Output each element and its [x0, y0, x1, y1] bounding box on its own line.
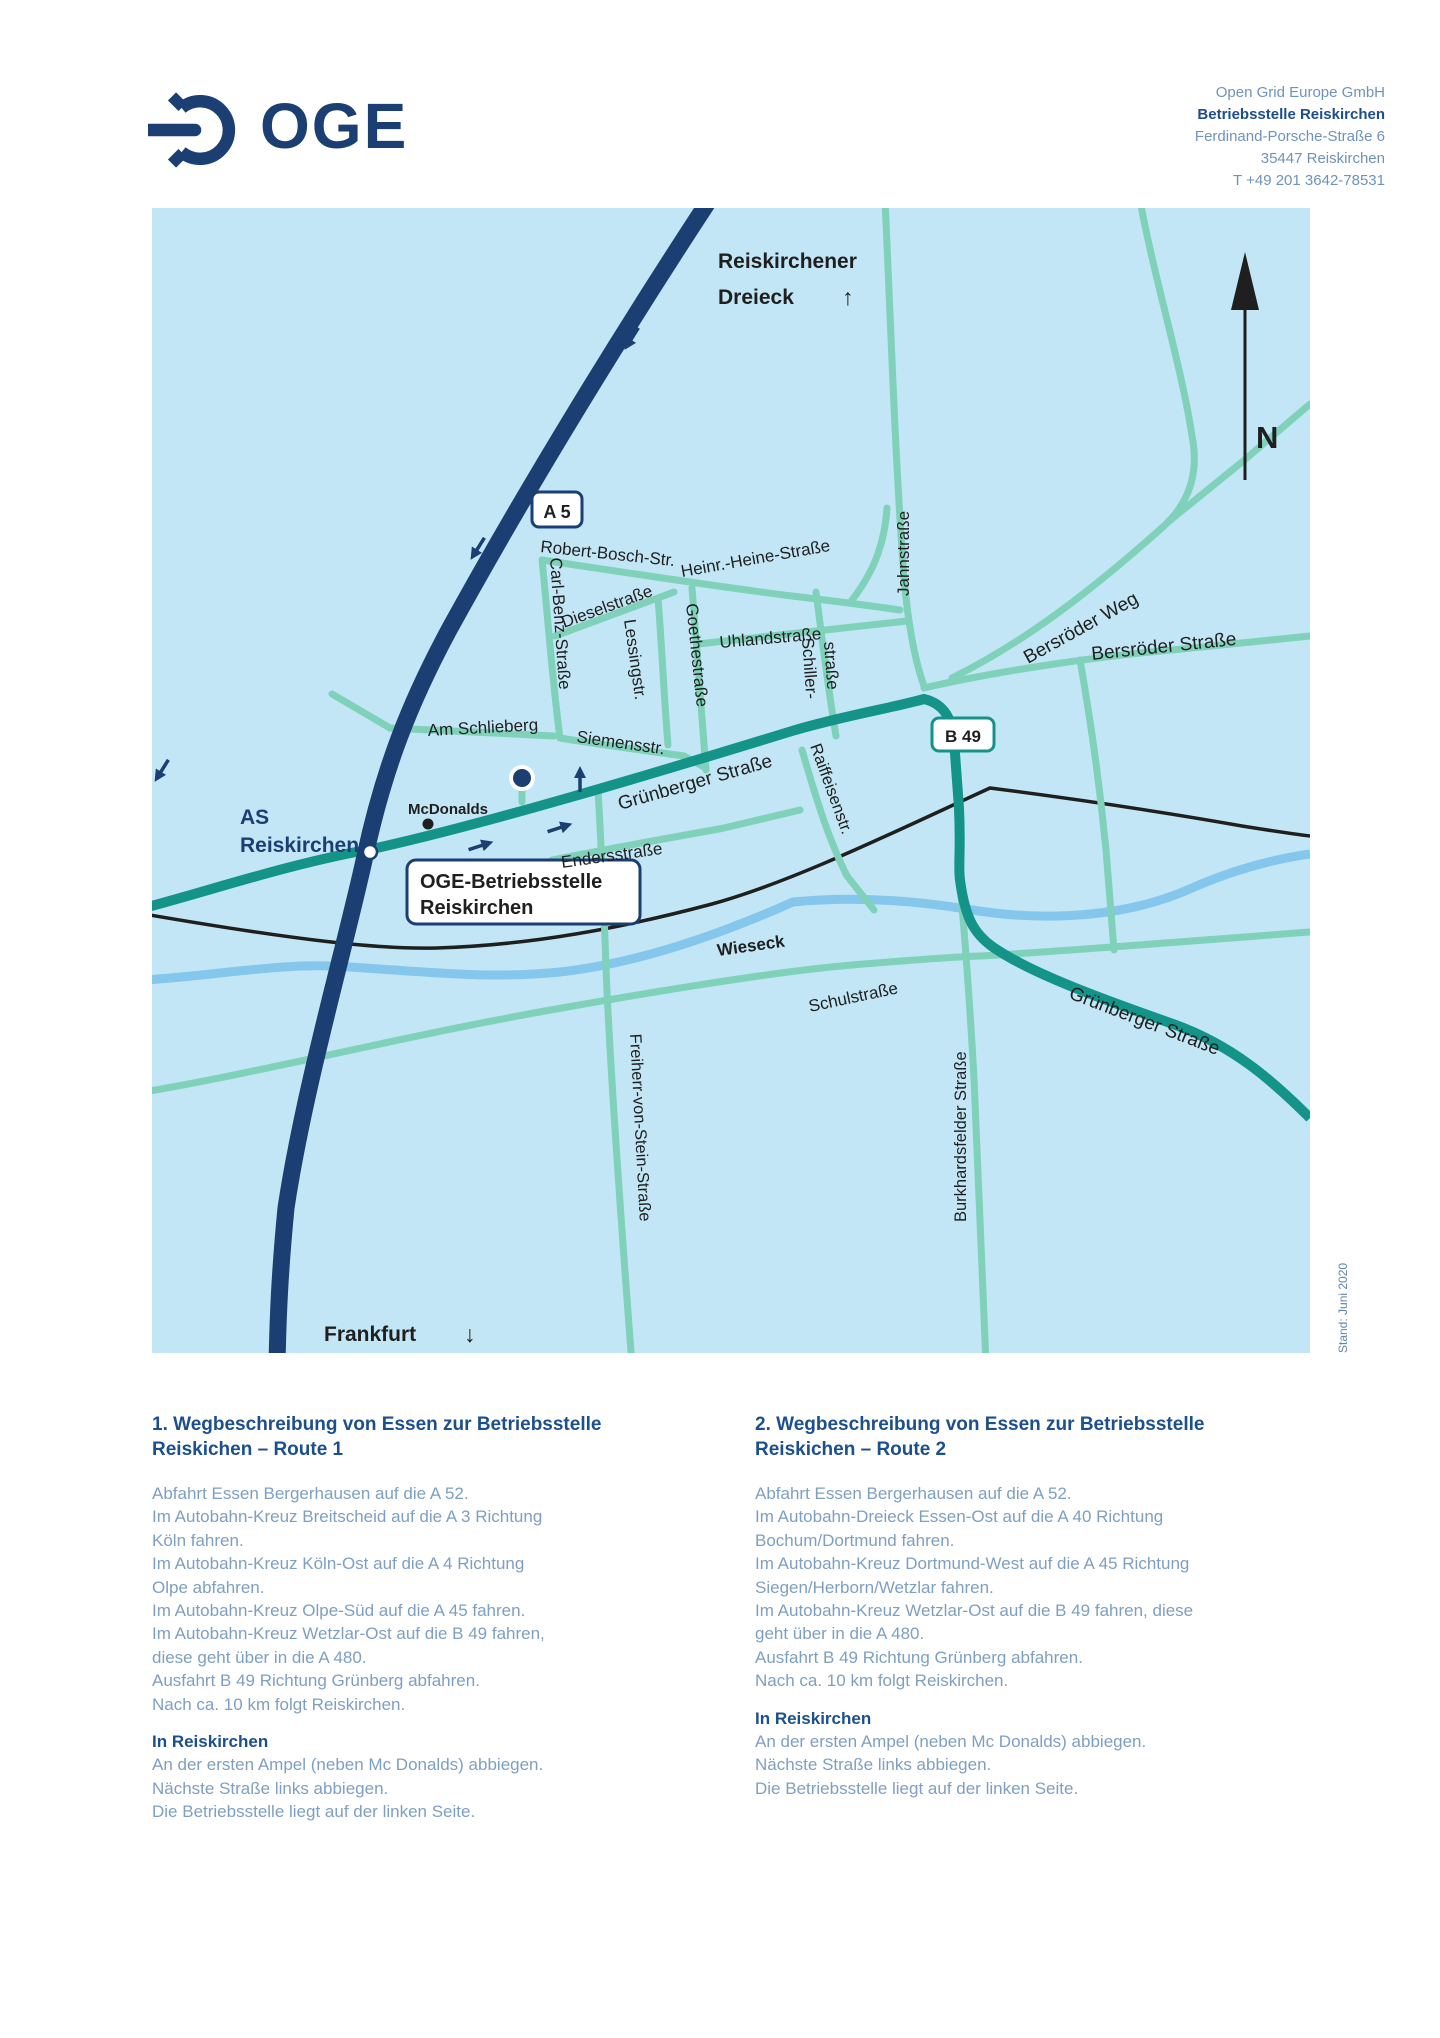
oge-callout-line2: Reiskirchen	[420, 897, 533, 919]
route-2-column: 2. Wegbeschreibung von Essen zur Betrieb…	[755, 1412, 1225, 1800]
route-2-step: Im Autobahn-Dreieck Essen-Ost auf die A …	[755, 1505, 1225, 1528]
as-reiskirchen-junction-dot	[363, 845, 377, 859]
route-2-title-line1: 2. Wegbeschreibung von Essen zur Betrieb…	[755, 1414, 1204, 1435]
route-1-step: Olpe abfahren.	[152, 1576, 622, 1599]
frankfurt-label: Frankfurt	[324, 1323, 416, 1346]
route-1-step: Im Autobahn-Kreuz Wetzlar-Ost auf die B …	[152, 1622, 622, 1645]
location-map: A 5 B 49 OGE-Betriebsstelle Reiskirchen …	[152, 208, 1310, 1353]
a5-shield: A 5	[532, 492, 582, 527]
route-1-step: diese geht über in die A 480.	[152, 1646, 622, 1669]
route-1-step: Köln fahren.	[152, 1529, 622, 1552]
route-2-step: Bochum/Dortmund fahren.	[755, 1529, 1225, 1552]
route-2-step: Im Autobahn-Kreuz Dortmund-West auf die …	[755, 1552, 1225, 1575]
oge-callout-box: OGE-Betriebsstelle Reiskirchen	[407, 860, 640, 924]
b49-shield: B 49	[932, 718, 994, 751]
route-2-body: Abfahrt Essen Bergerhausen auf die A 52.…	[755, 1482, 1225, 1800]
route-1-title-line1: 1. Wegbeschreibung von Essen zur Betrieb…	[152, 1414, 601, 1435]
route-2-step: Im Autobahn-Kreuz Wetzlar-Ost auf die B …	[755, 1599, 1225, 1622]
revision-date-note: Stand: Juni 2020	[1336, 1228, 1352, 1353]
as-label-line1: AS	[240, 806, 269, 829]
route-1-substep: An der ersten Ampel (neben Mc Donalds) a…	[152, 1753, 622, 1776]
route-1-subheading: In Reiskirchen	[152, 1730, 622, 1753]
mcdonalds-label: McDonalds	[408, 801, 488, 818]
route-1-step: Im Autobahn-Kreuz Köln-Ost auf die A 4 R…	[152, 1552, 622, 1575]
route-1-step: Im Autobahn-Kreuz Breitscheid auf die A …	[152, 1505, 622, 1528]
street-schiller-line2: straße	[820, 641, 842, 690]
oge-logo-text: OGE	[260, 94, 408, 158]
route-1-step: Ausfahrt B 49 Richtung Grünberg abfahren…	[152, 1669, 622, 1692]
route-1-substep: Die Betriebsstelle liegt auf der linken …	[152, 1800, 622, 1823]
letterhead-address: Open Grid Europe GmbH Betriebsstelle Rei…	[1195, 82, 1385, 192]
dreieck-label-line2: Dreieck	[718, 286, 794, 309]
route-1-step: Abfahrt Essen Bergerhausen auf die A 52.	[152, 1482, 622, 1505]
dreieck-up-arrow-icon: ↑	[842, 284, 854, 310]
page: OGE Open Grid Europe GmbH Betriebsstelle…	[0, 0, 1440, 2038]
route-2-title: 2. Wegbeschreibung von Essen zur Betrieb…	[755, 1412, 1225, 1462]
oge-callout-line1: OGE-Betriebsstelle	[420, 871, 602, 893]
mcdonalds-dot	[423, 819, 434, 830]
site-name: Betriebsstelle Reiskirchen	[1195, 104, 1385, 126]
route-1-step: Nach ca. 10 km folgt Reiskirchen.	[152, 1693, 622, 1716]
route-2-step: geht über in die A 480.	[755, 1622, 1225, 1645]
route-2-step: Abfahrt Essen Bergerhausen auf die A 52.	[755, 1482, 1225, 1505]
route-1-title: 1. Wegbeschreibung von Essen zur Betrieb…	[152, 1412, 622, 1462]
route-2-step: Siegen/Herborn/Wetzlar fahren.	[755, 1576, 1225, 1599]
oge-logo-icon	[148, 82, 244, 178]
route-2-step: Ausfahrt B 49 Richtung Grünberg abfahren…	[755, 1646, 1225, 1669]
route-1-column: 1. Wegbeschreibung von Essen zur Betrieb…	[152, 1412, 622, 1824]
route-1-step: Im Autobahn-Kreuz Olpe-Süd auf die A 45 …	[152, 1599, 622, 1622]
route-2-title-line2: Reiskichen – Route 2	[755, 1439, 946, 1460]
as-label-line2: Reiskirchen	[240, 834, 359, 857]
phone-number: T +49 201 3642-78531	[1195, 170, 1385, 192]
frankfurt-down-arrow-icon: ↓	[464, 1321, 476, 1347]
north-label: N	[1256, 420, 1278, 455]
street-address: Ferdinand-Porsche-Straße 6	[1195, 126, 1385, 148]
street-burkhardsfelder: Burkhardsfelder Straße	[952, 1051, 970, 1222]
route-2-substep: An der ersten Ampel (neben Mc Donalds) a…	[755, 1730, 1225, 1753]
route-2-substep: Nächste Straße links abbiegen.	[755, 1753, 1225, 1776]
b49-shield-label: B 49	[945, 727, 981, 746]
street-jahn: Jahnstraße	[894, 511, 913, 596]
dreieck-label-line1: Reiskirchener	[718, 250, 857, 273]
route-1-substep: Nächste Straße links abbiegen.	[152, 1777, 622, 1800]
route-1-body: Abfahrt Essen Bergerhausen auf die A 52.…	[152, 1482, 622, 1824]
route-2-substep: Die Betriebsstelle liegt auf der linken …	[755, 1777, 1225, 1800]
route-2-step: Nach ca. 10 km folgt Reiskirchen.	[755, 1669, 1225, 1692]
a5-shield-label: A 5	[543, 502, 570, 522]
company-name: Open Grid Europe GmbH	[1195, 82, 1385, 104]
city-address: 35447 Reiskirchen	[1195, 148, 1385, 170]
oge-site-marker	[513, 769, 531, 787]
route-2-subheading: In Reiskirchen	[755, 1707, 1225, 1730]
route-1-title-line2: Reiskichen – Route 1	[152, 1439, 343, 1460]
